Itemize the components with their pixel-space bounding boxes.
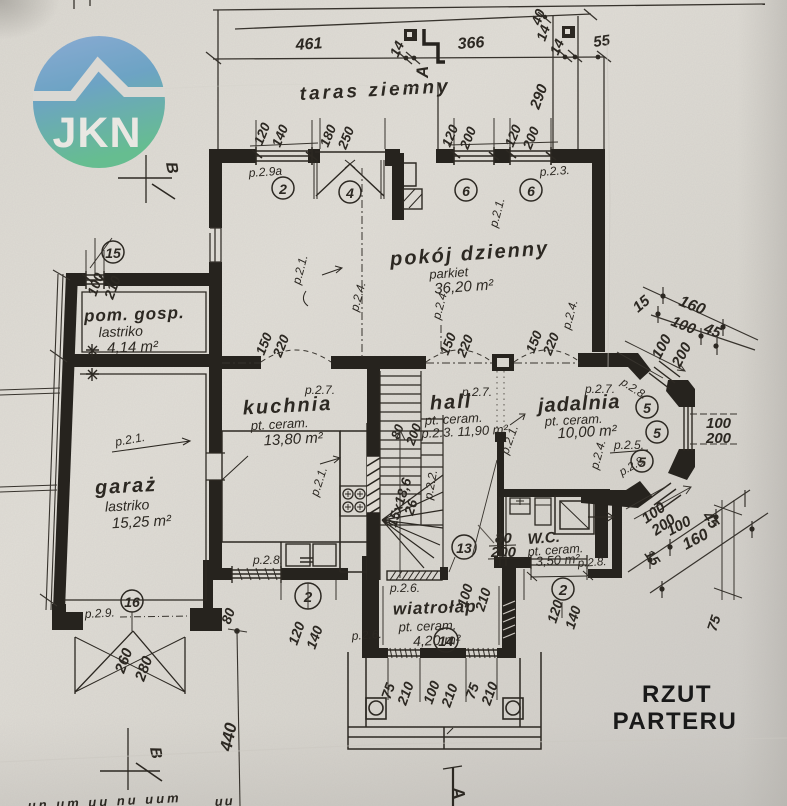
svg-text:6: 6 bbox=[527, 183, 535, 199]
svg-text:15: 15 bbox=[105, 245, 121, 261]
svg-text:13: 13 bbox=[456, 540, 472, 556]
svg-text:p.2.8.: p.2.8. bbox=[576, 556, 607, 570]
svg-text:uu: uu bbox=[214, 793, 235, 806]
svg-text:PARTERU: PARTERU bbox=[613, 708, 738, 735]
svg-text:p.2.3.: p.2.3. bbox=[538, 163, 570, 179]
svg-text:p.2.5.: p.2.5. bbox=[613, 438, 644, 452]
svg-text:p.2.6.: p.2.6. bbox=[389, 581, 420, 595]
svg-text:4,20 m²: 4,20 m² bbox=[413, 631, 462, 649]
svg-text:461: 461 bbox=[294, 35, 323, 54]
svg-text:200: 200 bbox=[705, 430, 732, 447]
svg-text:2: 2 bbox=[558, 582, 568, 599]
svg-text:4,14 m²: 4,14 m² bbox=[107, 338, 159, 357]
svg-text:p.2.8.: p.2.8. bbox=[252, 553, 283, 567]
svg-text:JKN: JKN bbox=[52, 109, 141, 157]
svg-text:garaż: garaż bbox=[93, 474, 157, 499]
svg-text:4: 4 bbox=[345, 185, 354, 201]
svg-text:5: 5 bbox=[643, 400, 651, 416]
svg-text:55: 55 bbox=[592, 32, 612, 51]
svg-text:16: 16 bbox=[124, 594, 140, 610]
svg-text:p.2.6.: p.2.6. bbox=[350, 627, 382, 643]
svg-text:5: 5 bbox=[653, 425, 661, 441]
svg-text:lastriko: lastriko bbox=[98, 323, 143, 341]
svg-text:366: 366 bbox=[457, 34, 485, 53]
svg-text:lastriko: lastriko bbox=[105, 496, 150, 514]
svg-text:10,00 m²: 10,00 m² bbox=[557, 422, 618, 442]
svg-text:13,80 m²: 13,80 m² bbox=[263, 429, 324, 449]
svg-text:15,25 m²: 15,25 m² bbox=[111, 512, 172, 532]
svg-text:6: 6 bbox=[462, 183, 470, 199]
svg-text:p.2.9.: p.2.9. bbox=[83, 605, 115, 621]
svg-text:3,50 m²: 3,50 m² bbox=[535, 551, 581, 569]
svg-text:p.2.9a: p.2.9a bbox=[247, 164, 283, 180]
svg-text:2: 2 bbox=[278, 181, 287, 197]
svg-text:RZUT: RZUT bbox=[642, 681, 712, 708]
